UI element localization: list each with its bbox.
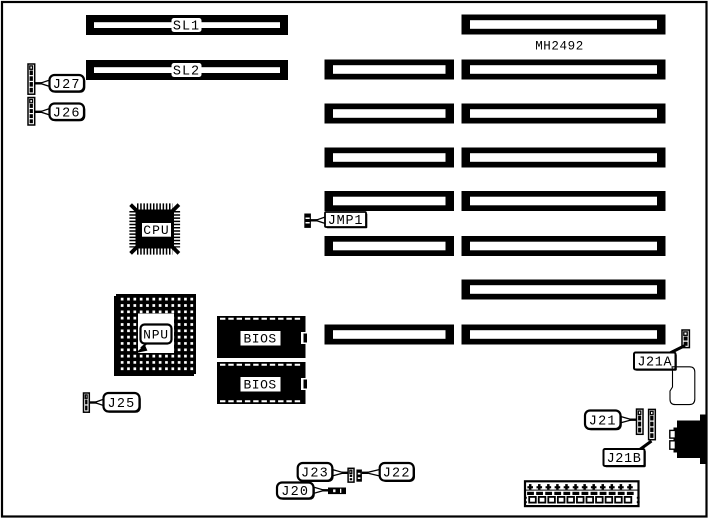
svg-text:J26: J26 (53, 106, 81, 121)
svg-text:CPU: CPU (143, 223, 169, 238)
svg-text:J25: J25 (108, 397, 136, 412)
svg-text:SL1: SL1 (173, 20, 200, 35)
svg-text:J21: J21 (589, 414, 617, 429)
svg-text:J21B: J21B (607, 452, 642, 467)
svg-text:J22: J22 (383, 467, 411, 482)
svg-text:JMP1: JMP1 (328, 214, 364, 229)
svg-text:BIOS: BIOS (244, 332, 277, 347)
svg-text:SL2: SL2 (173, 65, 200, 80)
svg-text:MH2492: MH2492 (535, 40, 584, 54)
svg-text:J27: J27 (53, 78, 81, 93)
svg-text:J20: J20 (281, 485, 309, 500)
svg-text:BIOS: BIOS (244, 378, 277, 393)
svg-text:NPU: NPU (143, 328, 169, 343)
svg-text:J21A: J21A (637, 356, 672, 371)
svg-text:J23: J23 (301, 467, 329, 482)
